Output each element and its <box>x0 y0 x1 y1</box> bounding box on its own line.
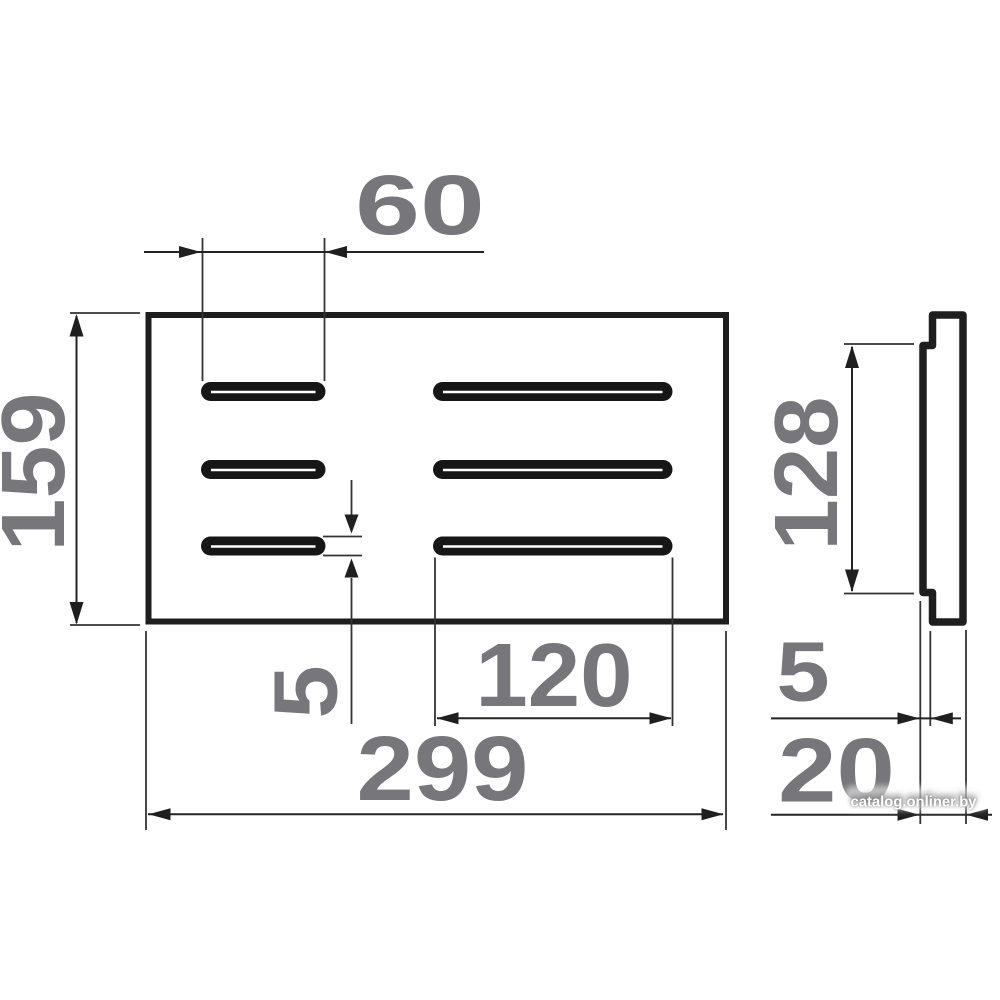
svg-text:catalog.onliner.by: catalog.onliner.by <box>851 795 978 811</box>
svg-text:128: 128 <box>756 397 857 551</box>
svg-text:5: 5 <box>776 625 829 719</box>
svg-text:159: 159 <box>0 392 84 551</box>
svg-text:120: 120 <box>475 625 632 726</box>
svg-text:5: 5 <box>256 665 357 718</box>
svg-text:60: 60 <box>355 158 485 252</box>
svg-text:299: 299 <box>357 718 529 820</box>
